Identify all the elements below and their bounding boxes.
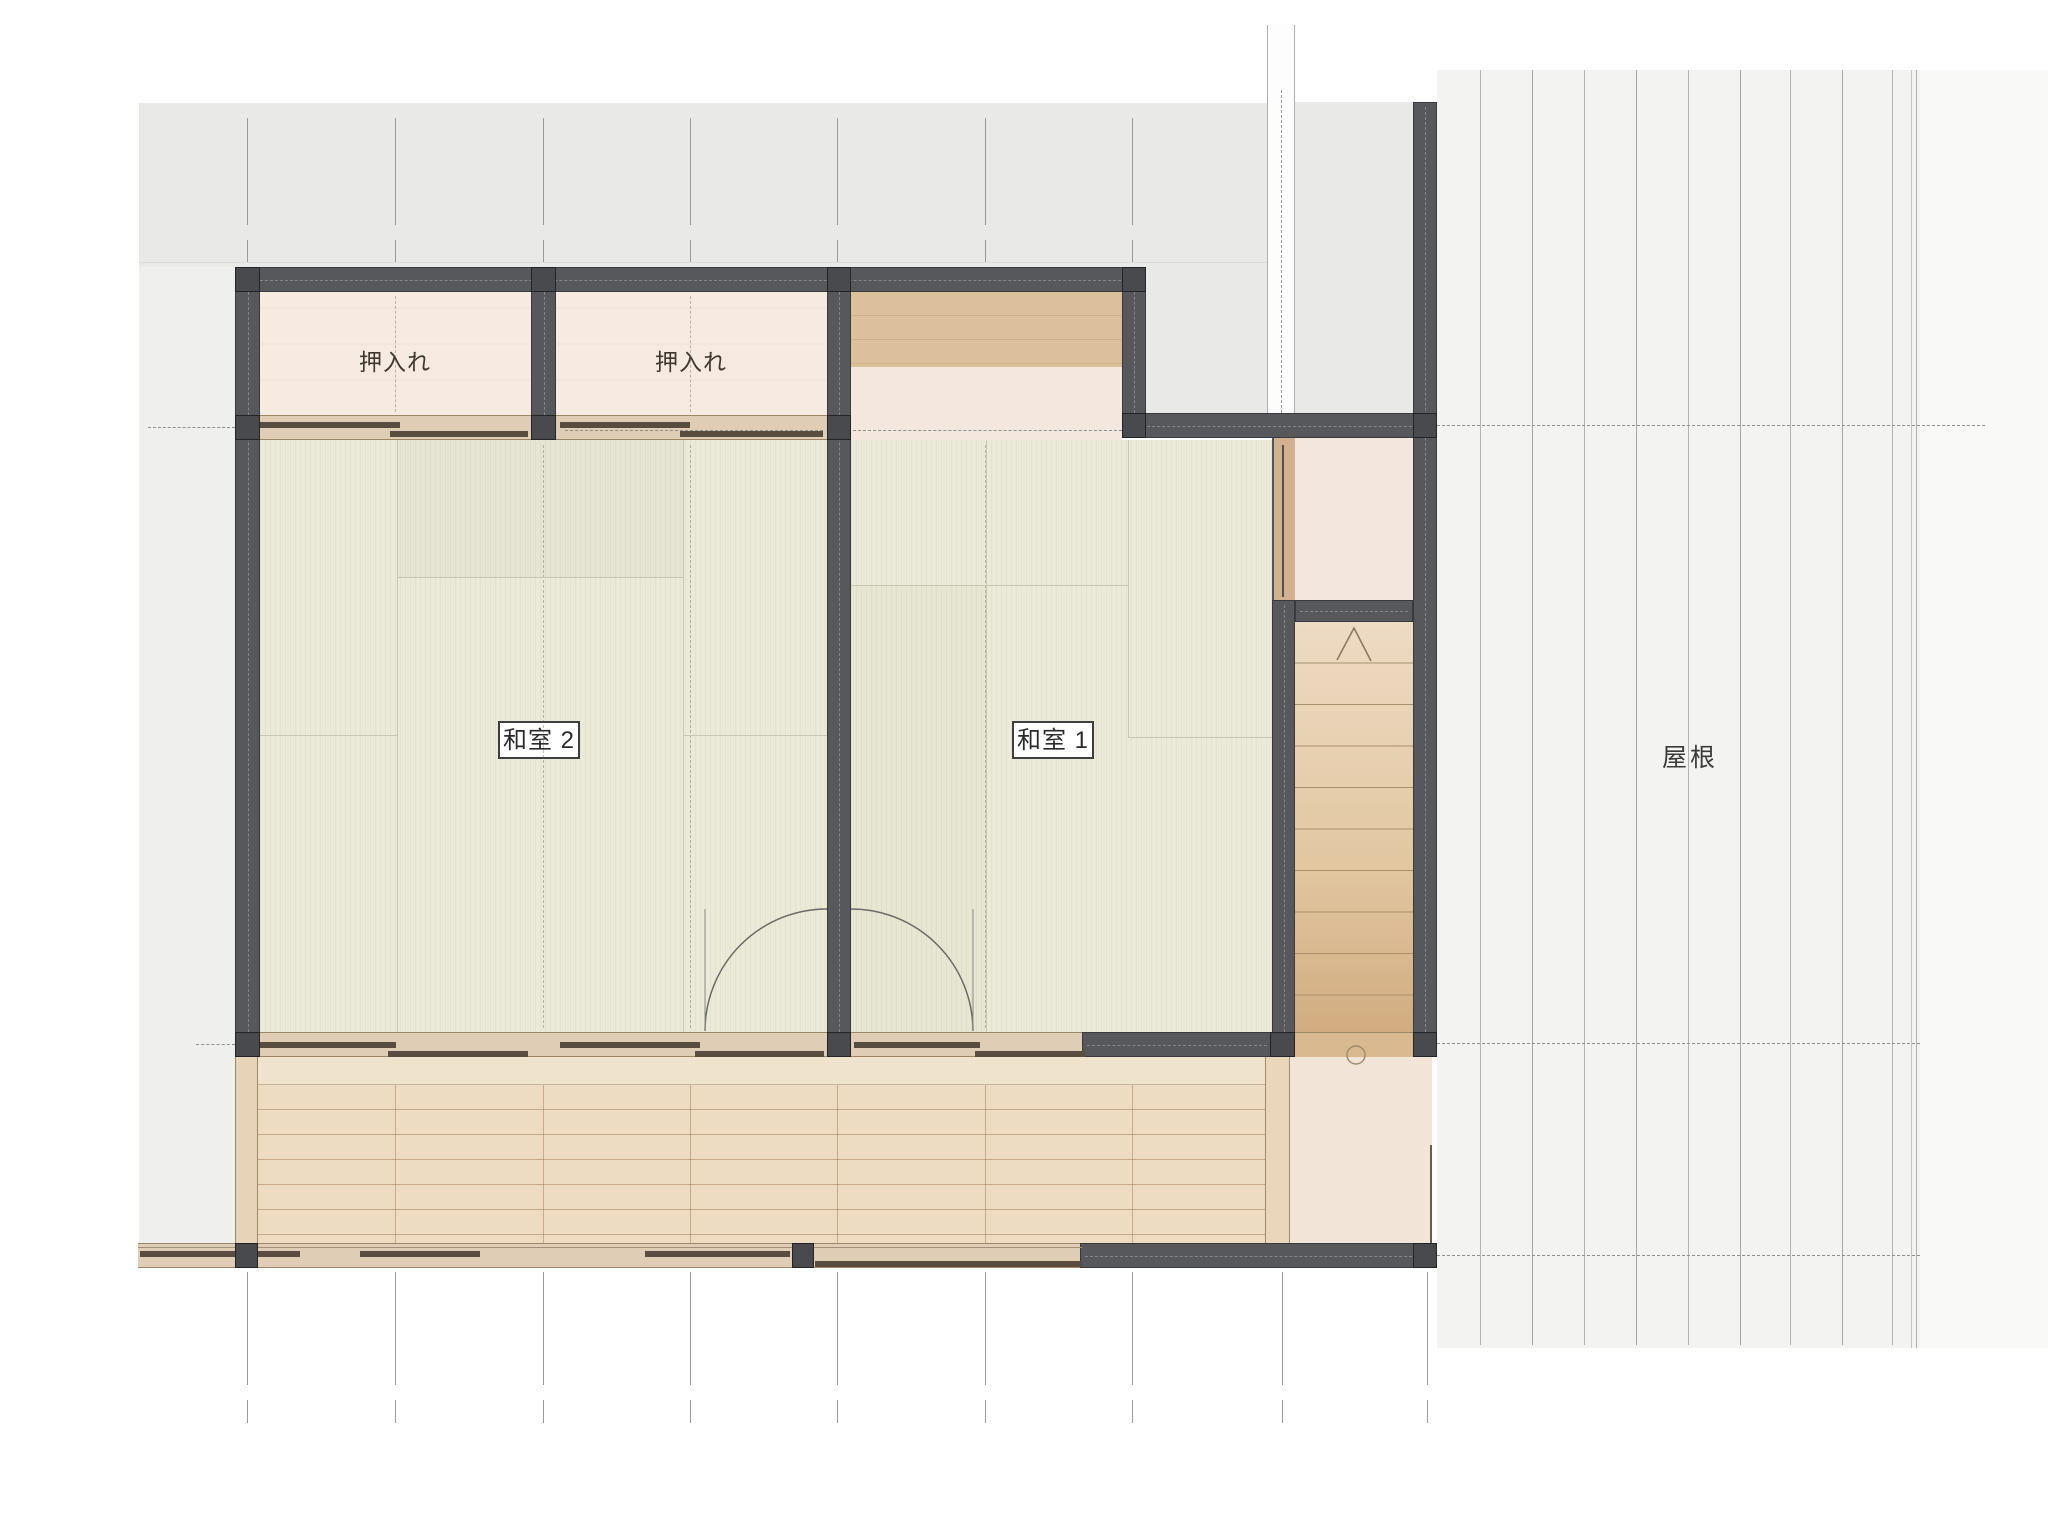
door-swing-arc-right [851,909,973,1031]
sliding-door-track [854,1042,980,1048]
structural-post [235,267,260,292]
structural-post [827,1032,851,1057]
deck-joint-line [543,1085,544,1243]
grid-line-vertical [690,1272,691,1385]
sliding-door-track [258,1042,396,1048]
roof-seam-line [1740,70,1741,1345]
deck-joint-line [985,1085,986,1243]
tatami-joint-line [1128,737,1272,738]
sliding-door-track [140,1251,300,1257]
sliding-door-track [258,422,400,428]
roof-edge-line [1916,70,1917,1348]
structural-post [1122,267,1146,292]
deck-sill-line [138,1247,1082,1248]
tatami-joint-line [683,440,684,1032]
grid-line-vertical [1427,1400,1428,1423]
structural-post [792,1243,814,1268]
roof-seam-line [1584,70,1585,1345]
grid-line-vertical [1132,1400,1133,1423]
grid-line-vertical [1282,1400,1283,1423]
grid-line-vertical [543,1400,544,1423]
column-circle-symbol [1347,1046,1365,1064]
label-closet-right: 押入れ [596,343,786,377]
structural-post [235,1243,258,1268]
grid-line-vertical [247,1400,248,1423]
grid-line-vertical [690,118,691,225]
structural-post [1413,1243,1437,1268]
roof-seam-line [1636,70,1637,1345]
deck-joint-line [395,1085,396,1243]
grid-line-vertical [837,1400,838,1423]
grid-line-vertical [543,240,544,262]
sliding-door-track [388,1051,528,1057]
structural-post [531,267,556,292]
deck-joint-line [690,1085,691,1243]
sliding-door-track [360,1251,480,1257]
label-roof: 屋根 [1662,738,1718,774]
dashed-reference-line [148,427,235,428]
structural-post [1413,413,1437,438]
grid-line-vertical [395,1400,396,1423]
sliding-door-track [680,431,823,437]
grid-line-vertical [247,240,248,262]
grid-line-vertical [985,1272,986,1385]
grid-line-vertical [395,240,396,262]
dashed-reference-line [1437,425,1985,426]
grid-line-vertical [690,1400,691,1423]
structural-post [531,415,556,440]
sliding-door-track [695,1051,824,1057]
grid-line-vertical [1282,1272,1283,1385]
structural-post [827,415,851,440]
door-swing-arc-left [705,909,827,1031]
tatami-joint-line [1128,440,1129,737]
grid-line-vertical [247,118,248,225]
grid-line-dashed [690,445,691,1028]
roof-seam-line [1790,70,1791,1345]
grid-line-vertical [395,1272,396,1385]
floor-plan-canvas: 押入れ 押入れ 和室 2 和室 1 屋根 [0,0,2048,1536]
grid-line-dashed [395,296,396,412]
structural-post [235,1032,260,1057]
dashed-reference-line [853,430,1122,431]
roof-seam-line [1480,70,1481,1345]
grid-line-dashed [543,445,544,1028]
grid-line-vertical [690,240,691,262]
structural-post [1122,413,1146,438]
sliding-door-track [975,1051,1085,1057]
grid-line-vertical [837,118,838,225]
roof-seam-line [1842,70,1843,1345]
grid-line-vertical [985,240,986,262]
roof-seam-line [1892,70,1893,1345]
grid-line-dashed [690,296,691,412]
structural-post [235,415,260,440]
grid-line-vertical [1132,1272,1133,1385]
grid-line-vertical [985,118,986,225]
dashed-reference-line [1437,1043,1920,1044]
sliding-door-track [390,431,528,437]
grid-line-dashed [837,445,838,1028]
label-washitsu-2: 和室 2 [498,721,580,759]
grid-line-vertical [247,1272,248,1385]
dashed-reference-line [196,1044,235,1045]
roof-seam-line [1532,70,1533,1345]
structural-post [1270,1032,1295,1057]
deck-joint-line [837,1085,838,1243]
roof-valley-centerline [1281,90,1282,413]
dashed-reference-line [1437,1255,1920,1256]
grid-line-vertical [1427,1272,1428,1385]
grid-line-vertical [837,240,838,262]
roof-edge-line [1911,70,1912,1348]
tatami-joint-line [397,440,398,1032]
grid-line-vertical [543,118,544,225]
tatami-joint-line [851,585,1128,586]
stairs-up-arrow-icon [1337,628,1371,661]
sliding-door-track [815,1261,1082,1267]
structural-post [1413,1032,1437,1057]
grid-line-vertical [543,1272,544,1385]
grid-line-vertical [837,1272,838,1385]
grid-line-vertical [395,118,396,225]
tatami-joint-line [986,440,987,1032]
roof-seam-line [1688,70,1689,1345]
sliding-door-track [645,1251,790,1257]
tatami-joint-line [397,577,683,578]
tatami-joint-line [683,735,827,736]
sliding-door-track [560,422,690,428]
tatami-joint-line [260,735,397,736]
sliding-door-track [560,1042,700,1048]
deck-joint-line [1132,1085,1133,1243]
structural-post [827,267,851,292]
grid-line-vertical [1132,240,1133,262]
grid-line-vertical [985,1400,986,1423]
label-washitsu-1: 和室 1 [1012,721,1094,759]
grid-line-vertical [1132,118,1133,225]
